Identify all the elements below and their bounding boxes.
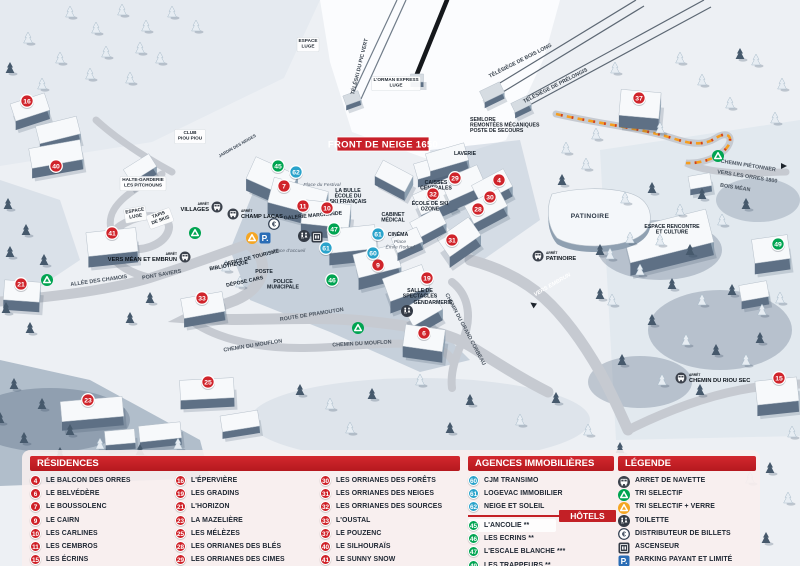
legend-item-number: 4 [30, 475, 41, 486]
svg-text:33: 33 [198, 295, 206, 302]
bus-icon [212, 202, 223, 213]
legend-item-label: L'ÉPERVIÈRE [191, 477, 237, 484]
legend-item: 15LES ÉCRINS [30, 553, 175, 566]
map-marker-40[interactable]: 40 [49, 160, 63, 174]
map-label: CABINETMÉDICAL [381, 212, 405, 224]
legende-item-label: PARKING PAYANT ET LIMITÉ [635, 556, 732, 563]
legend-item: 7LE BOUSSOLENC [30, 500, 175, 513]
svg-text:CINÉMA: CINÉMA [388, 230, 409, 238]
legend-item-number: 23 [175, 515, 186, 526]
map-label: GENDARMERIE [414, 300, 453, 306]
map-label: PATINOIRE [571, 213, 610, 220]
bus-icon [676, 373, 687, 384]
legend-item: 47L'ESCALE BLANCHE *** [468, 545, 614, 558]
legend-item-label: LOGEVAC IMMOBILIER [484, 490, 563, 497]
svg-text:30: 30 [486, 194, 494, 201]
svg-text:LAVERIE: LAVERIE [454, 151, 477, 157]
svg-text:€: € [272, 220, 276, 229]
patinoire-building [548, 189, 650, 252]
map-marker-15[interactable]: 15 [772, 372, 786, 386]
legende-header: LÉGENDE [618, 456, 756, 471]
legend-item: 6LE BELVÉDÈRE [30, 487, 175, 500]
svg-text:25: 25 [204, 379, 212, 386]
legend-item-number: 15 [30, 554, 41, 565]
map-label: ESPACELUGE [297, 37, 319, 51]
legend-item-number: 6 [30, 488, 41, 499]
residences-column: 30LES ORRIANES DES FORÊTS31LES ORRIANES … [320, 474, 460, 566]
map-marker-19[interactable]: 19 [420, 272, 434, 286]
legend-item: 25LES MÉLÈZES [175, 527, 320, 540]
legend-item-label: LE POUZENC [336, 530, 381, 537]
legend-item-number: 33 [320, 515, 331, 526]
svg-text:GENDARMERIE: GENDARMERIE [414, 300, 453, 306]
legend-item-number: 49 [468, 560, 479, 566]
legend-item-number: 30 [320, 475, 331, 486]
legende-item-label: ARRET DE NAVETTE [635, 477, 705, 484]
legend-item: 4LE BALCON DES ORRES [30, 474, 175, 487]
legend-item: 23LA MAZELIÈRE [175, 514, 320, 527]
svg-text:PATINOIRE: PATINOIRE [546, 256, 576, 262]
svg-text:62: 62 [292, 169, 300, 176]
legend-item: 61LOGEVAC IMMOBILIER [468, 487, 614, 500]
svg-text:31: 31 [448, 237, 456, 244]
front-de-neige-banner: FRONT DE NEIGE 1650 [328, 137, 438, 151]
map-marker-29[interactable]: 29 [448, 172, 462, 186]
svg-text:7: 7 [282, 183, 286, 190]
legend-item-label: LES ORRIANES DES NEIGES [336, 490, 434, 497]
legend-item: 32LES ORRIANES DES SOURCES [320, 500, 460, 513]
recycle-orange-icon [246, 232, 258, 244]
legend-item-label: L'ANCOLIE ** [484, 522, 529, 529]
map-marker-33[interactable]: 33 [195, 292, 209, 306]
legend-item-number: 28 [175, 541, 186, 552]
residences-column: 4LE BALCON DES ORRES6LE BELVÉDÈRE7LE BOU… [30, 474, 175, 566]
legend-item-label: L'HORIZON [191, 503, 230, 510]
svg-text:ARRÊT: ARRÊT [241, 208, 252, 213]
svg-text:CHAMP LACAS: CHAMP LACAS [241, 214, 283, 220]
svg-text:ARRÊT: ARRÊT [689, 372, 700, 377]
resort-map: FRONT DE NEIGE 1650 CLUBPIOU PIOUESPACEL… [0, 0, 800, 566]
legende-item-label: TOILETTE [635, 517, 669, 524]
svg-text:19: 19 [423, 275, 431, 282]
map-label: HALTE-GARDERIELES PITCHOUNS [120, 176, 166, 190]
legend-panel: RÉSIDENCES 4LE BALCON DES ORRES6LE BELVÉ… [22, 450, 760, 566]
legend-item: 41LE SUNNY SNOW [320, 553, 460, 566]
legend-item: 40LE SILHOURAÏS [320, 540, 460, 553]
legende-item: TRI SELECTIF [618, 487, 760, 500]
svg-text:61: 61 [374, 231, 382, 238]
legend-item-number: 16 [175, 475, 186, 486]
svg-text:40: 40 [52, 163, 60, 170]
legend-item-number: 25 [175, 528, 186, 539]
elevator-icon [312, 232, 323, 243]
map-marker-46[interactable]: 46 [325, 274, 339, 288]
legend-item-number: 11 [30, 541, 41, 552]
legend-item: 28LES ORRIANES DES BLÉS [175, 540, 320, 553]
legend-item-label: LES CEMBROS [46, 543, 98, 550]
map-marker-60[interactable]: 60 [366, 247, 380, 261]
legend-item: 10LES CARLINES [30, 527, 175, 540]
elevator-icon [618, 541, 630, 553]
svg-text:HALTE-GARDERIELES PITCHOUNS: HALTE-GARDERIELES PITCHOUNS [122, 177, 164, 188]
svg-text:€: € [622, 530, 626, 539]
recycle-green-icon [41, 274, 53, 286]
toilet-icon [401, 305, 413, 317]
map-label: LAVERIE [454, 151, 477, 157]
svg-text:29: 29 [451, 175, 459, 182]
legend-item-label: LE BOUSSOLENC [46, 503, 107, 510]
legend-item-number: 31 [320, 488, 331, 499]
svg-text:61: 61 [322, 245, 330, 252]
toilet-icon [618, 514, 630, 526]
legend-item-label: CJM TRANSIMO [484, 477, 538, 484]
svg-text:28: 28 [474, 206, 482, 213]
map-marker-32[interactable]: 32 [426, 188, 440, 202]
svg-text:45: 45 [274, 163, 282, 170]
residences-header: RÉSIDENCES [30, 456, 460, 471]
legend-item-label: LES CARLINES [46, 530, 98, 537]
map-marker-16[interactable]: 16 [20, 95, 34, 109]
legend-item-label: LES ORRIANES DES BLÉS [191, 543, 281, 550]
legende-item: ARRET DE NAVETTE [618, 474, 760, 487]
svg-text:46: 46 [328, 277, 336, 284]
agencies-header: AGENCES IMMOBILIÈRES [468, 456, 614, 471]
legend-item-label: L'ESCALE BLANCHE *** [484, 548, 565, 555]
legend-item-number: 29 [175, 554, 186, 565]
recycle-green-icon [712, 150, 724, 162]
svg-text:41: 41 [108, 230, 116, 237]
legend-item-number: 10 [30, 528, 41, 539]
map-marker-21[interactable]: 21 [14, 278, 28, 292]
legende-item-label: TRI SELECTIF [635, 490, 683, 497]
svg-text:SALLE DESPECTACLES: SALLE DESPECTACLES [403, 288, 438, 300]
legend-item: 33L'OUSTAL [320, 514, 460, 527]
legend-item-label: LES GRADINS [191, 490, 239, 497]
map-marker-31[interactable]: 31 [445, 234, 459, 248]
legend-item: 30LES ORRIANES DES FORÊTS [320, 474, 460, 487]
bus-icon [180, 252, 191, 263]
legend-item: 31LES ORRIANES DES NEIGES [320, 487, 460, 500]
map-marker-47[interactable]: 47 [327, 223, 341, 237]
legend-item-label: LA MAZELIÈRE [191, 517, 243, 524]
svg-text:ARRÊT: ARRÊT [546, 250, 557, 255]
svg-text:16: 16 [23, 98, 31, 105]
legend-item-number: 46 [468, 533, 479, 544]
legend-item-number: 41 [320, 554, 331, 565]
svg-text:Place d'accueil: Place d'accueil [273, 248, 306, 254]
legend-item-label: LES MÉLÈZES [191, 530, 240, 537]
map-marker-10[interactable]: 10 [320, 202, 334, 216]
svg-text:49: 49 [774, 241, 782, 248]
map-marker-45[interactable]: 45 [271, 160, 285, 174]
legend-item-label: NEIGE ET SOLEIL [484, 503, 544, 510]
legend-item-label: LE SUNNY SNOW [336, 556, 395, 563]
legend-item: 9LE CAIRN [30, 514, 175, 527]
legende-list: ARRET DE NAVETTETRI SELECTIFTRI SELECTIF… [618, 474, 760, 566]
legend-item-label: LES ORRIANES DES SOURCES [336, 503, 442, 510]
svg-text:11: 11 [299, 203, 306, 210]
svg-text:Place du Festival: Place du Festival [303, 182, 341, 188]
legend-item-label: LES ÉCRINS [46, 556, 88, 563]
svg-text:VILLAGES: VILLAGES [181, 207, 210, 213]
legend-item-number: 40 [320, 541, 331, 552]
legend-item: 45L'ANCOLIE ** [468, 519, 556, 532]
residences-title: RÉSIDENCES [37, 458, 99, 469]
legende-title: LÉGENDE [625, 458, 671, 469]
bus-icon [618, 475, 630, 487]
legende-item-label: TRI SELECTIF + VERRE [635, 503, 715, 510]
parking-icon: P. [260, 233, 271, 244]
map-marker-49[interactable]: 49 [771, 238, 785, 252]
map-marker-41[interactable]: 41 [105, 227, 119, 241]
map-marker-28[interactable]: 28 [471, 203, 485, 217]
recycle-green-icon [618, 488, 630, 500]
legend-item: 11LES CEMBROS [30, 540, 175, 553]
euro-icon: € [618, 527, 630, 539]
legend-item-label: LES ORRIANES DES CIMES [191, 556, 285, 563]
map-marker-62[interactable]: 62 [289, 166, 303, 180]
legend-item-label: L'OUSTAL [336, 517, 370, 524]
svg-text:23: 23 [84, 397, 92, 404]
parking-icon: P. [618, 554, 630, 566]
legend-item: 16L'ÉPERVIÈRE [175, 474, 320, 487]
legend-item-number: 21 [175, 501, 186, 512]
legend-item-number: 32 [320, 501, 331, 512]
legende-item: P.PARKING PAYANT ET LIMITÉ [618, 553, 760, 566]
svg-text:CABINETMÉDICAL: CABINETMÉDICAL [381, 212, 405, 224]
svg-text:P.: P. [262, 233, 269, 243]
svg-text:ARRÊT: ARRÊT [198, 201, 209, 206]
legend-item: 60CJM TRANSIMO [468, 474, 614, 487]
svg-text:37: 37 [635, 95, 643, 102]
residences-list: 4LE BALCON DES ORRES6LE BELVÉDÈRE7LE BOU… [30, 474, 460, 566]
bus-icon [533, 251, 544, 262]
map-label: CINÉMA [388, 230, 409, 238]
map-label: CLUBPIOU PIOU [175, 129, 206, 143]
map-marker-61[interactable]: 61 [371, 228, 385, 242]
legend-item: 46LES ECRINS ** [468, 532, 614, 545]
legende-item: TRI SELECTIF + VERRE [618, 500, 760, 513]
svg-text:VERS MÉAN ET EMBRUN: VERS MÉAN ET EMBRUN [108, 255, 177, 263]
svg-text:POSTE: POSTE [255, 269, 273, 275]
hotels-list: 45L'ANCOLIE **46LES ECRINS **47L'ESCALE … [468, 519, 614, 566]
map-marker-37[interactable]: 37 [632, 92, 646, 106]
recycle-green-icon [189, 227, 201, 239]
residences-column: 16L'ÉPERVIÈRE19LES GRADINS21L'HORIZON23L… [175, 474, 320, 566]
legend-item-number: 61 [468, 488, 479, 499]
legend-item-label: LE SILHOURAÏS [336, 543, 391, 550]
legend-item-label: LE BALCON DES ORRES [46, 477, 131, 484]
map-marker-6[interactable]: 6 [417, 327, 431, 341]
agencies-list: 60CJM TRANSIMO61LOGEVAC IMMOBILIER62NEIG… [468, 474, 614, 514]
map-label: Place d'accueil [273, 248, 306, 254]
svg-text:21: 21 [17, 281, 25, 288]
toilet-icon [298, 230, 310, 242]
map-marker-30[interactable]: 30 [483, 191, 497, 205]
svg-text:CHEMIN DU RIOU SEC: CHEMIN DU RIOU SEC [689, 378, 750, 384]
legend-item-label: LE CAIRN [46, 517, 79, 524]
map-label: POSTE [255, 269, 273, 275]
legend-item-number: 62 [468, 501, 479, 512]
svg-text:6: 6 [422, 330, 426, 337]
svg-text:9: 9 [376, 262, 380, 269]
legend-item: 19LES GRADINS [175, 487, 320, 500]
legend-item-number: 9 [30, 515, 41, 526]
recycle-orange-icon [618, 501, 630, 513]
legende-item: ASCENSEUR [618, 540, 760, 553]
legend-item: 37LE POUZENC [320, 527, 460, 540]
recycle-green-icon [352, 322, 364, 334]
svg-text:PATINOIRE: PATINOIRE [571, 213, 610, 220]
legend-item: 49LES TRAPPEURS ** [468, 559, 614, 566]
legend-item-number: 19 [175, 488, 186, 499]
agencies-title: AGENCES IMMOBILIÈRES [475, 458, 594, 469]
legend-item: 29LES ORRIANES DES CIMES [175, 553, 320, 566]
legend-item-label: LES ECRINS ** [484, 535, 534, 542]
map-label: Place du Festival [303, 182, 341, 188]
map-marker-7[interactable]: 7 [277, 180, 291, 194]
legend-item-label: LES ORRIANES DES FORÊTS [336, 477, 436, 484]
svg-text:4: 4 [497, 177, 501, 184]
map-marker-4[interactable]: 4 [492, 174, 506, 188]
map-label: SALLE DESPECTACLES [403, 288, 438, 300]
legend-item-number: 37 [320, 528, 331, 539]
map-marker-23[interactable]: 23 [81, 394, 95, 408]
svg-text:P.: P. [621, 556, 628, 566]
svg-text:60: 60 [369, 250, 377, 257]
legende-item-label: ASCENSEUR [635, 543, 679, 550]
euro-icon: € [269, 219, 280, 230]
svg-text:ARRÊT: ARRÊT [166, 251, 177, 256]
map-marker-25[interactable]: 25 [201, 376, 215, 390]
map-label: L'ORMAN EXPRESSLUGE [372, 76, 421, 90]
legend-item-number: 45 [468, 520, 479, 531]
banner-text: FRONT DE NEIGE 1650 [328, 140, 438, 151]
svg-text:47: 47 [330, 226, 338, 233]
map-marker-61[interactable]: 61 [319, 242, 333, 256]
bus-icon [228, 209, 239, 220]
legend-item-number: 7 [30, 501, 41, 512]
legend-item: 21L'HORIZON [175, 500, 320, 513]
map-marker-11[interactable]: 11 [296, 200, 310, 214]
legend-item-number: 60 [468, 475, 479, 486]
svg-text:15: 15 [775, 375, 783, 382]
svg-text:10: 10 [323, 205, 331, 212]
legend-item-label: LE BELVÉDÈRE [46, 490, 100, 497]
legend-item-number: 47 [468, 546, 479, 557]
svg-text:32: 32 [429, 191, 437, 198]
legende-item: TOILETTE [618, 514, 760, 527]
legende-item: €DISTRIBUTEUR DE BILLETS [618, 527, 760, 540]
legend-item-label: LES TRAPPEURS ** [484, 562, 551, 566]
legende-item-label: DISTRIBUTEUR DE BILLETS [635, 530, 731, 537]
